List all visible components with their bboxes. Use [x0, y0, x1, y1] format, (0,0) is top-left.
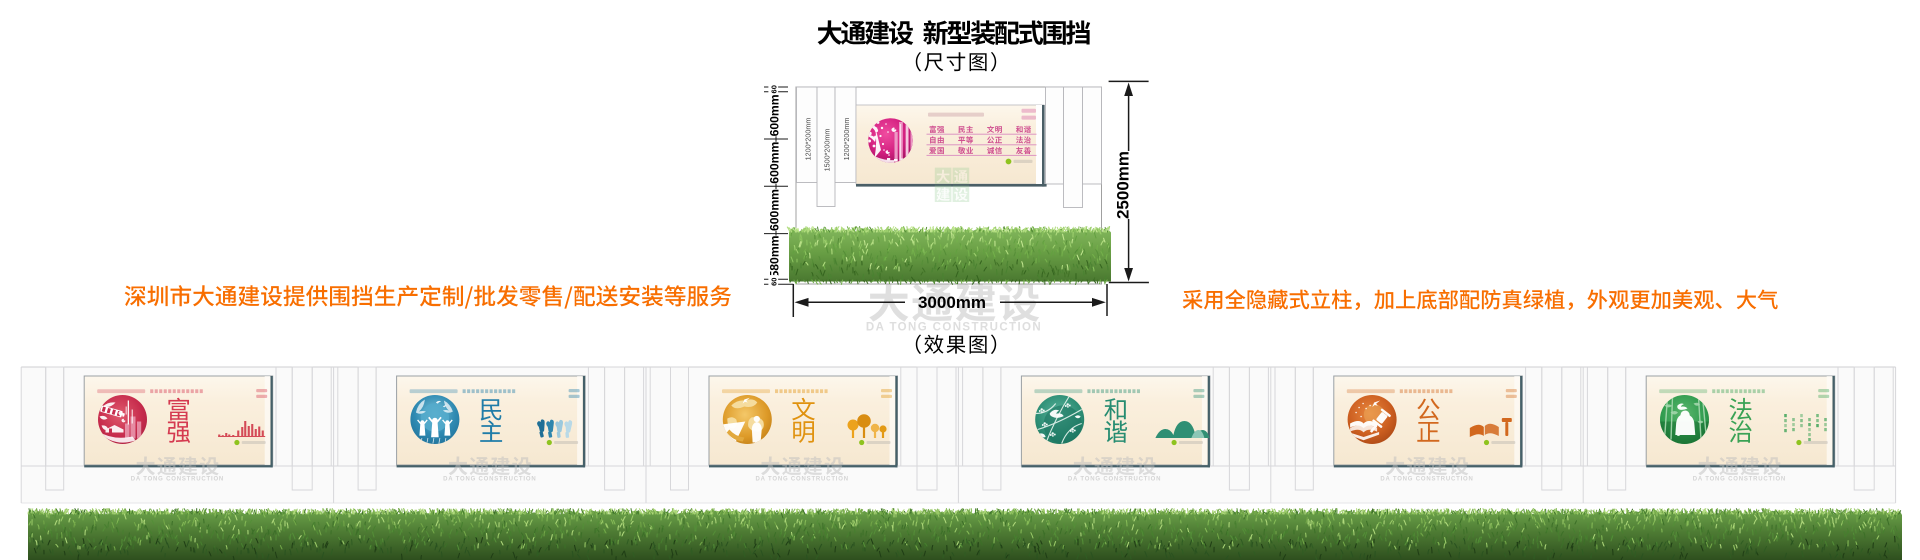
- svg-text:1200*200mm: 1200*200mm: [842, 118, 851, 161]
- svg-text:DA TONG CONSTRUCTION: DA TONG CONSTRUCTION: [443, 477, 536, 483]
- svg-text:600mm: 600mm: [767, 189, 781, 231]
- svg-text:DA TONG CONSTRUCTION: DA TONG CONSTRUCTION: [756, 477, 849, 483]
- svg-text:DA TONG CONSTRUCTION: DA TONG CONSTRUCTION: [1068, 477, 1161, 483]
- svg-text:600mm: 600mm: [767, 94, 781, 136]
- svg-text:580mm: 580mm: [767, 235, 781, 277]
- svg-text:3000mm: 3000mm: [918, 293, 986, 312]
- svg-text:60: 60: [770, 278, 779, 286]
- svg-text:DA TONG CONSTRUCTION: DA TONG CONSTRUCTION: [866, 322, 1042, 334]
- svg-text:1200*200mm: 1200*200mm: [803, 118, 812, 161]
- svg-text:60: 60: [770, 85, 779, 93]
- svg-text:600mm: 600mm: [767, 142, 781, 184]
- svg-text:DA TONG CONSTRUCTION: DA TONG CONSTRUCTION: [131, 477, 224, 483]
- svg-text:DA TONG CONSTRUCTION: DA TONG CONSTRUCTION: [1380, 477, 1473, 483]
- svg-text:DA TONG CONSTRUCTION: DA TONG CONSTRUCTION: [1693, 477, 1786, 483]
- svg-text:2500mm: 2500mm: [1114, 151, 1133, 219]
- svg-text:1500*200mm: 1500*200mm: [822, 129, 831, 172]
